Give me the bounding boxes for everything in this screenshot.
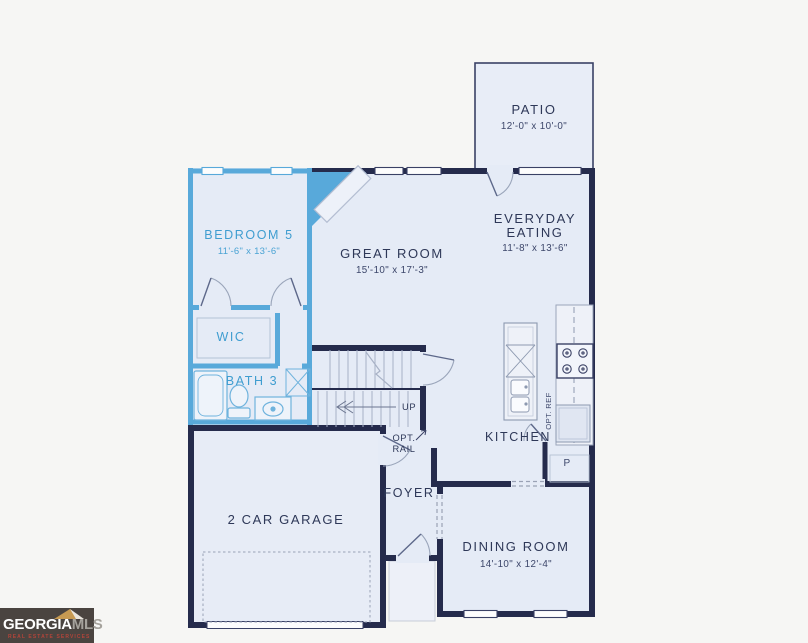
georgiamls-watermark: GEORGIAMLS REAL ESTATE SERVICES bbox=[0, 608, 94, 643]
window-eating bbox=[519, 168, 581, 175]
georgiamls-wordmark: GEORGIAMLS bbox=[3, 616, 103, 634]
bedroom5-label: BEDROOM 5 bbox=[204, 228, 293, 242]
toilet-tank bbox=[228, 408, 250, 418]
everyday-eating-label-1: EVERYDAY bbox=[494, 211, 576, 226]
toilet-bowl bbox=[230, 385, 248, 407]
opt-rail-label-2: RAIL bbox=[392, 444, 415, 454]
window-greatroom-1 bbox=[375, 168, 403, 175]
patio-label: PATIO bbox=[511, 102, 556, 117]
bedroom5-dims: 11'-6" x 13'-6" bbox=[218, 246, 280, 257]
great-room-dims: 15'-10" x 17'-3" bbox=[356, 265, 428, 276]
foyer-label: FOYER bbox=[383, 486, 434, 500]
window-dining-2 bbox=[534, 611, 567, 618]
front-stoop bbox=[389, 561, 435, 621]
opt-rail-label-1: OPT. bbox=[392, 433, 415, 443]
everyday-eating-dims: 11'-8" x 13'-6" bbox=[502, 243, 568, 254]
georgiamls-tagline: REAL ESTATE SERVICES bbox=[8, 634, 90, 640]
window-dining-1 bbox=[464, 611, 497, 618]
great-room-label: GREAT ROOM bbox=[340, 246, 444, 261]
floorplan-drawing: PATIO 12'-0" x 10'-0" BEDROOM 5 11'-6" x… bbox=[0, 0, 808, 643]
range bbox=[557, 344, 593, 378]
garage-label: 2 CAR GARAGE bbox=[228, 512, 345, 527]
opt-refrigerator bbox=[556, 405, 590, 442]
kitchen-label: KITCHEN bbox=[485, 430, 551, 444]
window-bedroom5-2 bbox=[271, 168, 292, 175]
pantry-label: P bbox=[563, 458, 570, 469]
stairs-up-label: UP bbox=[402, 402, 416, 412]
garage-door-opening bbox=[207, 622, 363, 629]
patio-dims: 12'-0" x 10'-0" bbox=[501, 121, 567, 132]
wic-label: WIC bbox=[216, 330, 245, 344]
window-bedroom5-1 bbox=[202, 168, 223, 175]
everyday-eating-label-2: EATING bbox=[506, 225, 563, 240]
bath3-label: BATH 3 bbox=[226, 374, 278, 388]
dining-room-dims: 14'-10" x 12'-4" bbox=[480, 559, 552, 570]
window-greatroom-2 bbox=[407, 168, 441, 175]
mountain-peak-icon bbox=[54, 609, 84, 619]
opt-ref-label: OPT. REF bbox=[544, 392, 553, 429]
dining-room-label: DINING ROOM bbox=[462, 539, 569, 554]
floorplan-image: PATIO 12'-0" x 10'-0" BEDROOM 5 11'-6" x… bbox=[0, 0, 808, 643]
